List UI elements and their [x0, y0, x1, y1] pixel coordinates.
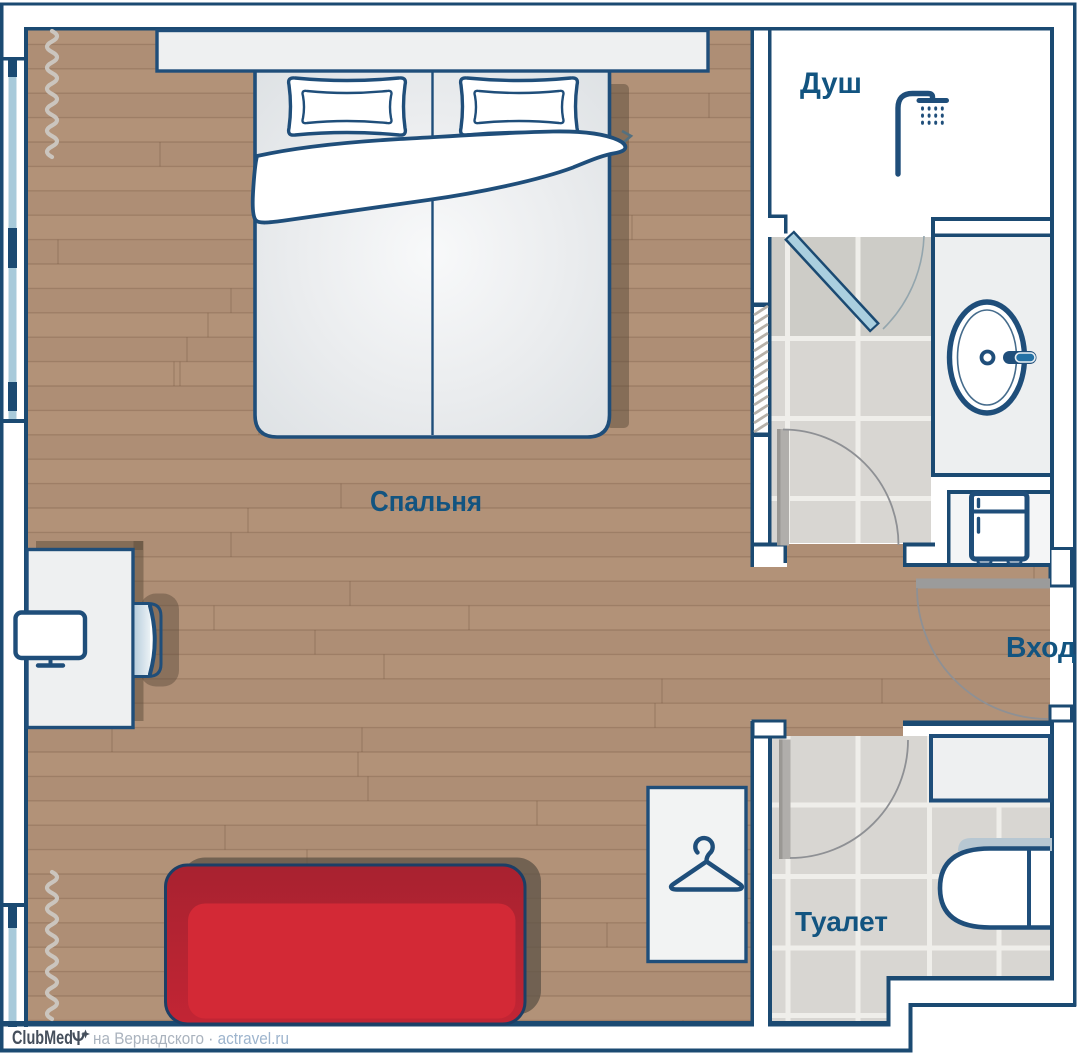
svg-text:Вход: Вход	[1006, 632, 1076, 664]
svg-text:Душ: Душ	[800, 67, 862, 100]
svg-text:Туалет: Туалет	[795, 906, 888, 937]
svg-text:на Вернадского · actravel.ru: на Вернадского · actravel.ru	[93, 1029, 289, 1048]
svg-text:Спальня: Спальня	[370, 486, 482, 518]
svg-text:ClubMed: ClubMed	[12, 1028, 73, 1049]
